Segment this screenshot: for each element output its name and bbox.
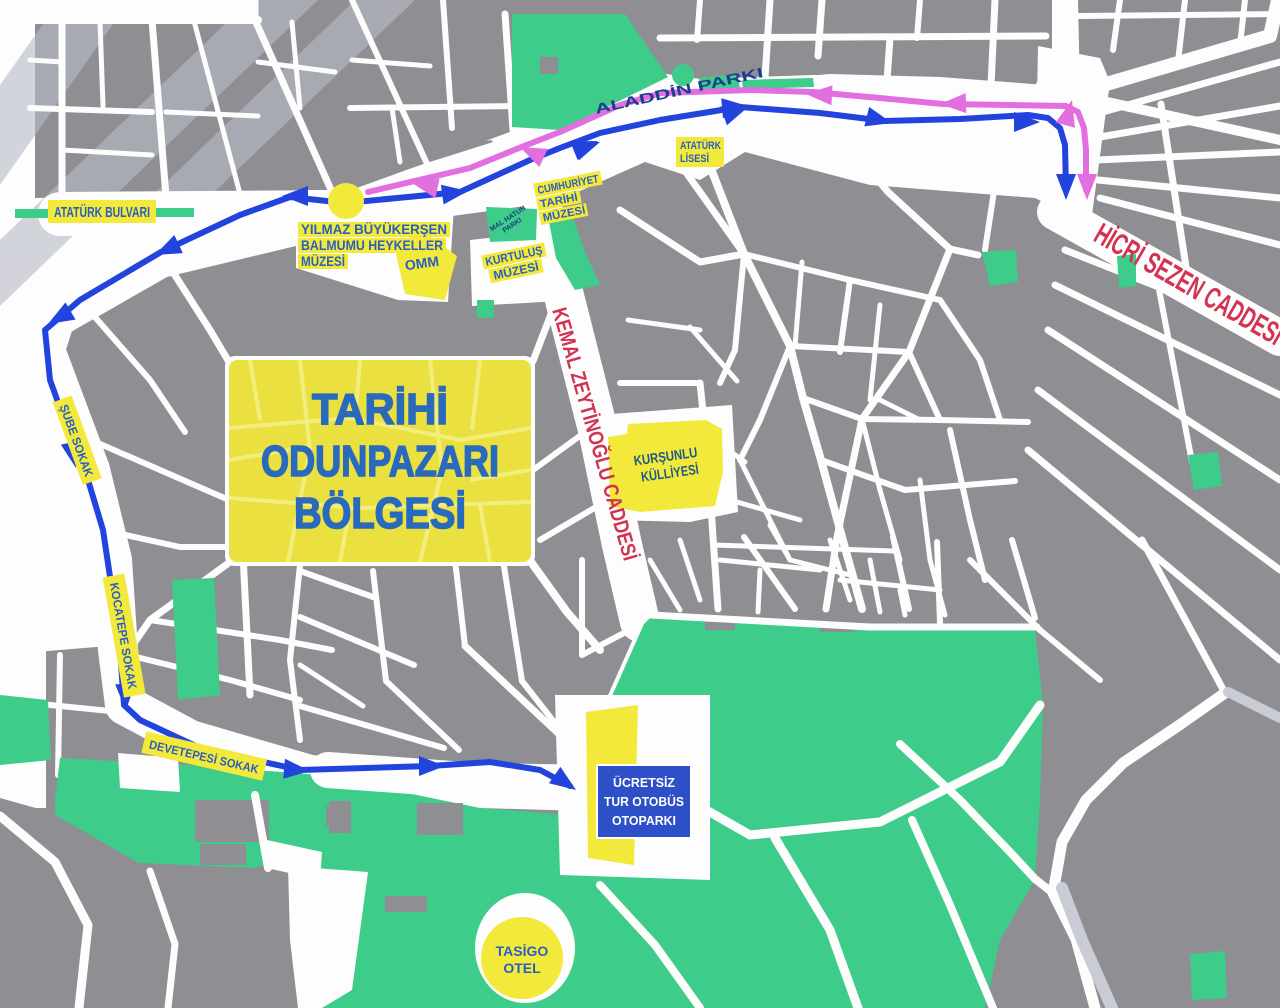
- svg-text:OTEL: OTEL: [503, 960, 541, 976]
- svg-text:ATATÜRK: ATATÜRK: [680, 139, 721, 152]
- svg-text:LİSESİ: LİSESİ: [680, 152, 709, 165]
- svg-text:ÜCRETSİZ: ÜCRETSİZ: [613, 775, 675, 790]
- svg-text:TARİHİ: TARİHİ: [312, 385, 448, 434]
- svg-text:YILMAZ BÜYÜKERŞEN: YILMAZ BÜYÜKERŞEN: [301, 221, 447, 237]
- svg-text:TUR OTOBÜS: TUR OTOBÜS: [604, 794, 684, 809]
- svg-text:ODUNPAZARI: ODUNPAZARI: [261, 437, 499, 486]
- svg-text:TASİGO: TASİGO: [496, 943, 549, 959]
- svg-text:ATATÜRK BULVARI: ATATÜRK BULVARI: [54, 204, 150, 221]
- svg-text:BALMUMU HEYKELLER: BALMUMU HEYKELLER: [301, 237, 443, 253]
- svg-text:OTOPARKI: OTOPARKI: [612, 813, 676, 828]
- svg-text:BÖLGESİ: BÖLGESİ: [294, 489, 466, 538]
- svg-text:MÜZESİ: MÜZESİ: [301, 253, 345, 269]
